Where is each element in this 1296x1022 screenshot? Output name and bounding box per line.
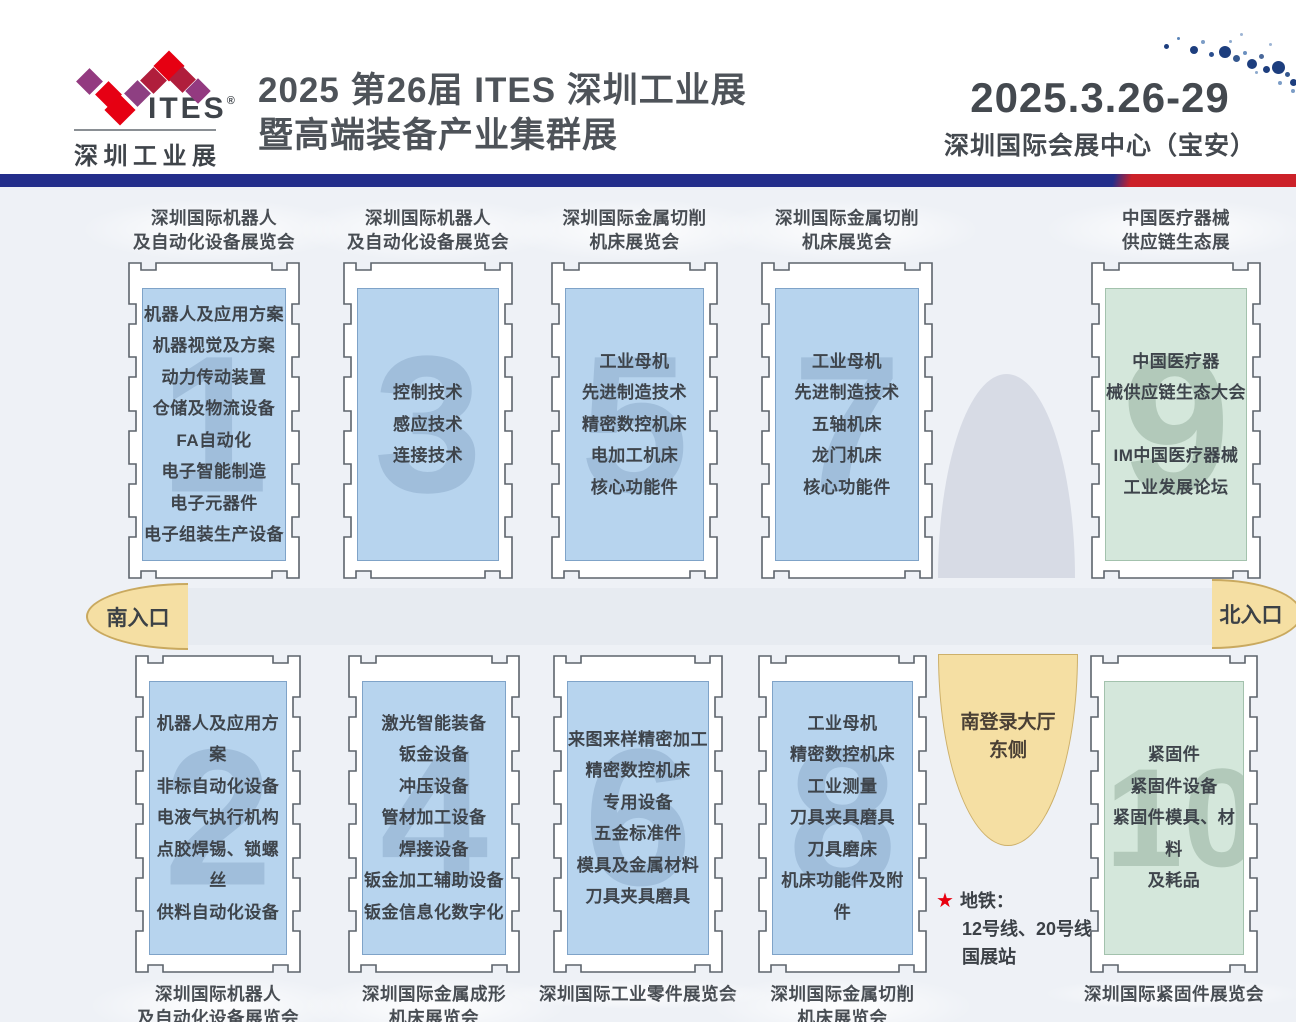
hall-10-items: 紧固件紧固件设备紧固件模具、材料及耗品 xyxy=(1105,739,1243,897)
title-line-2: 暨高端装备产业集群展 xyxy=(258,113,747,158)
north-lobby-shape xyxy=(938,374,1075,578)
hall-2-label: 深圳国际机器人及自动化设备展览会 xyxy=(105,982,331,1022)
hall-item: 及耗品 xyxy=(1105,865,1243,897)
hall-item: 管材加工设备 xyxy=(364,802,504,834)
hall-7: 7工业母机先进制造技术五轴机床龙门机床核心功能件 xyxy=(761,262,933,579)
hall-item: 来图来样精密加工 xyxy=(568,724,708,756)
hall-10-area: 10紧固件紧固件设备紧固件模具、材料及耗品 xyxy=(1104,681,1244,955)
hall-item: 紧固件 xyxy=(1105,739,1243,771)
hall-item xyxy=(1106,409,1246,441)
hall-label-line: 中国医疗器械 xyxy=(1061,206,1291,230)
event-date: 2025.3.26-29 xyxy=(930,74,1270,122)
hall-label-line: 供应链生态展 xyxy=(1061,230,1291,254)
hall-item: 仓储及物流设备 xyxy=(144,393,284,425)
divider-bar xyxy=(0,174,1296,187)
hall-item: 电液气执行机构 xyxy=(150,802,286,834)
star-icon: ★ xyxy=(936,890,954,912)
hall-item: 动力传动装置 xyxy=(144,362,284,394)
hall-6-items: 来图来样精密加工精密数控机床专用设备五金标准件模具及金属材料刀具夹具磨具 xyxy=(568,724,708,913)
north-entrance: 北入口 xyxy=(1212,579,1296,649)
hall-label-line: 深圳国际机器人 xyxy=(105,982,331,1006)
hall-item: 精密数控机床 xyxy=(582,409,687,441)
decorative-dot xyxy=(1291,89,1295,93)
decorative-dot xyxy=(1164,44,1169,49)
hall-item: 龙门机床 xyxy=(795,440,900,472)
hall-item: 工业母机 xyxy=(773,708,912,740)
hall-item: 模具及金属材料 xyxy=(568,850,708,882)
hall-item: 感应技术 xyxy=(393,409,463,441)
metro-note: ★地铁： 12号线、20号线 国展站 xyxy=(936,887,1106,971)
central-corridor xyxy=(170,588,1226,645)
hall-label-line: 深圳国际金属切削 xyxy=(731,206,963,230)
lobby-line-2: 东侧 xyxy=(989,737,1027,765)
hall-item: IM中国医疗器械 xyxy=(1106,440,1246,472)
hall-label-line: 及自动化设备展览会 xyxy=(105,1006,331,1022)
hall-item: 电子组装生产设备 xyxy=(144,519,284,551)
hall-item: FA自动化 xyxy=(144,425,284,457)
hall-item: 钣金设备 xyxy=(364,739,504,771)
hall-5: 5工业母机先进制造技术精密数控机床电加工机床核心功能件 xyxy=(551,262,718,579)
hall-item: 工业母机 xyxy=(795,346,900,378)
ites-logo: ITES® 深圳工业展 xyxy=(66,30,226,170)
decorative-dot xyxy=(1177,37,1180,40)
hall-item: 电加工机床 xyxy=(582,440,687,472)
hall-item: 冲压设备 xyxy=(364,771,504,803)
registered-mark: ® xyxy=(227,95,238,107)
hall-7-label: 深圳国际金属切削机床展览会 xyxy=(731,206,963,254)
lobby-line-1: 南登录大厅 xyxy=(960,709,1055,737)
metro-title: ★地铁： xyxy=(936,887,1106,915)
hall-item: 核心功能件 xyxy=(582,472,687,504)
decorative-dot xyxy=(1290,79,1296,86)
hall-3-area: 3控制技术感应技术连接技术 xyxy=(357,288,499,561)
event-info: 2025.3.26-29 深圳国际会展中心（宝安） xyxy=(930,74,1270,162)
hall-item: 五金标准件 xyxy=(568,818,708,850)
hall-6: 6来图来样精密加工精密数控机床专用设备五金标准件模具及金属材料刀具夹具磨具 xyxy=(553,655,723,973)
hall-item: 核心功能件 xyxy=(795,472,900,504)
decorative-dot xyxy=(1285,72,1290,77)
header: ITES® 深圳工业展 2025 第26届 ITES 深圳工业展 暨高端装备产业… xyxy=(0,0,1296,176)
hall-item: 工业母机 xyxy=(582,346,687,378)
hall-4-area: 4激光智能装备钣金设备冲压设备管材加工设备焊接设备钣金加工辅助设备钣金信息化数字… xyxy=(362,681,506,955)
metro-lines: 12号线、20号线 xyxy=(936,915,1106,943)
metro-station: 国展站 xyxy=(936,943,1106,971)
decorative-dot xyxy=(1209,52,1214,57)
hall-item: 机床功能件及附件 xyxy=(773,865,912,928)
hall-item: 焊接设备 xyxy=(364,834,504,866)
hall-4-items: 激光智能装备钣金设备冲压设备管材加工设备焊接设备钣金加工辅助设备钣金信息化数字化 xyxy=(364,708,504,929)
page-title: 2025 第26届 ITES 深圳工业展 暨高端装备产业集群展 xyxy=(258,68,747,158)
decorative-dot xyxy=(1247,59,1257,69)
hall-item: 精密数控机床 xyxy=(568,755,708,787)
hall-2: 2机器人及应用方案非标自动化设备电液气执行机构点胶焊锡、锁螺丝供料自动化设备 xyxy=(135,655,301,973)
floor-plan: 南入口 北入口 南登录大厅 东侧 ★地铁： 12号线、20号线 国展站 深圳国际… xyxy=(0,187,1296,1022)
hall-4: 4激光智能装备钣金设备冲压设备管材加工设备焊接设备钣金加工辅助设备钣金信息化数字… xyxy=(348,655,520,973)
title-line-1: 2025 第26届 ITES 深圳工业展 xyxy=(258,68,747,113)
hall-1: 1机器人及应用方案机器视觉及方案动力传动装置仓储及物流设备FA自动化电子智能制造… xyxy=(128,262,300,579)
decorative-dot xyxy=(1219,46,1231,58)
hall-7-area: 7工业母机先进制造技术五轴机床龙门机床核心功能件 xyxy=(775,288,919,561)
hall-8-items: 工业母机精密数控机床工业测量刀具夹具磨具刀具磨床机床功能件及附件 xyxy=(773,708,912,929)
hall-item: 工业发展论坛 xyxy=(1106,472,1246,504)
hall-3-items: 控制技术感应技术连接技术 xyxy=(393,377,463,472)
south-login-hall: 南登录大厅 东侧 xyxy=(938,654,1078,846)
logo-divider-line xyxy=(74,129,216,131)
hall-item: 刀具夹具磨具 xyxy=(568,881,708,913)
decorative-dot xyxy=(1272,61,1285,74)
decorative-dot xyxy=(1255,71,1258,74)
hall-1-area: 1机器人及应用方案机器视觉及方案动力传动装置仓储及物流设备FA自动化电子智能制造… xyxy=(142,288,286,561)
hall-item: 紧固件设备 xyxy=(1105,771,1243,803)
hall-10: 10紧固件紧固件设备紧固件模具、材料及耗品 xyxy=(1090,655,1258,973)
hall-10-label: 深圳国际紧固件展览会 xyxy=(1060,982,1288,1006)
hall-item: 供料自动化设备 xyxy=(150,897,286,929)
decorative-dot xyxy=(1269,43,1272,46)
hall-5-items: 工业母机先进制造技术精密数控机床电加工机床核心功能件 xyxy=(582,346,687,504)
hall-label-line: 深圳国际紧固件展览会 xyxy=(1060,982,1288,1006)
logo-subtitle: 深圳工业展 xyxy=(74,136,216,171)
hall-item: 工业测量 xyxy=(773,771,912,803)
hall-item: 械供应链生态大会 xyxy=(1106,377,1246,409)
south-entrance: 南入口 xyxy=(86,583,188,650)
hall-1-items: 机器人及应用方案机器视觉及方案动力传动装置仓储及物流设备FA自动化电子智能制造电… xyxy=(144,299,284,551)
hall-item: 紧固件模具、材料 xyxy=(1105,802,1243,865)
event-venue: 深圳国际会展中心（宝安） xyxy=(930,126,1270,162)
hall-item: 先进制造技术 xyxy=(582,377,687,409)
hall-item: 刀具夹具磨具 xyxy=(773,802,912,834)
decorative-dot xyxy=(1229,40,1232,43)
exhibition-floor-plan: ITES® 深圳工业展 2025 第26届 ITES 深圳工业展 暨高端装备产业… xyxy=(0,0,1296,1022)
hall-8-label: 深圳国际金属切削机床展览会 xyxy=(728,982,957,1022)
decorative-dot xyxy=(1190,46,1198,54)
decorative-dot xyxy=(1243,51,1247,55)
decorative-dot xyxy=(1240,33,1243,36)
hall-item: 五轴机床 xyxy=(795,409,900,441)
decorative-dot xyxy=(1278,81,1282,85)
hall-item: 中国医疗器 xyxy=(1106,346,1246,378)
hall-item: 非标自动化设备 xyxy=(150,771,286,803)
decorative-dot xyxy=(1201,40,1205,44)
hall-label-line: 机床展览会 xyxy=(728,1006,957,1022)
decorative-dot xyxy=(1233,55,1240,62)
decorative-dot xyxy=(1263,66,1270,73)
hall-9-items: 中国医疗器械供应链生态大会 IM中国医疗器械工业发展论坛 xyxy=(1106,346,1246,504)
hall-label-line: 深圳国际金属切削 xyxy=(728,982,957,1006)
hall-item: 刀具磨床 xyxy=(773,834,912,866)
hall-9-label: 中国医疗器械供应链生态展 xyxy=(1061,206,1291,254)
hall-2-items: 机器人及应用方案非标自动化设备电液气执行机构点胶焊锡、锁螺丝供料自动化设备 xyxy=(150,708,286,929)
hall-item: 机器视觉及方案 xyxy=(144,330,284,362)
hall-item: 专用设备 xyxy=(568,787,708,819)
hall-item: 钣金加工辅助设备 xyxy=(364,865,504,897)
hall-item: 先进制造技术 xyxy=(795,377,900,409)
hall-5-area: 5工业母机先进制造技术精密数控机床电加工机床核心功能件 xyxy=(565,288,704,561)
hall-8: 8工业母机精密数控机床工业测量刀具夹具磨具刀具磨床机床功能件及附件 xyxy=(758,655,927,973)
hall-label-line: 机床展览会 xyxy=(731,230,963,254)
hall-item: 机器人及应用方案 xyxy=(144,299,284,331)
hall-item: 控制技术 xyxy=(393,377,463,409)
hall-3: 3控制技术感应技术连接技术 xyxy=(343,262,513,579)
hall-9-area: 9中国医疗器械供应链生态大会 IM中国医疗器械工业发展论坛 xyxy=(1105,288,1247,561)
hall-item: 激光智能装备 xyxy=(364,708,504,740)
hall-item: 点胶焊锡、锁螺丝 xyxy=(150,834,286,897)
hall-item: 钣金信息化数字化 xyxy=(364,897,504,929)
hall-6-area: 6来图来样精密加工精密数控机床专用设备五金标准件模具及金属材料刀具夹具磨具 xyxy=(567,681,709,955)
hall-item: 连接技术 xyxy=(393,440,463,472)
hall-item: 电子智能制造 xyxy=(144,456,284,488)
hall-item: 机器人及应用方案 xyxy=(150,708,286,771)
hall-7-items: 工业母机先进制造技术五轴机床龙门机床核心功能件 xyxy=(795,346,900,504)
hall-9: 9中国医疗器械供应链生态大会 IM中国医疗器械工业发展论坛 xyxy=(1091,262,1261,579)
hall-item: 精密数控机床 xyxy=(773,739,912,771)
hall-2-area: 2机器人及应用方案非标自动化设备电液气执行机构点胶焊锡、锁螺丝供料自动化设备 xyxy=(149,681,287,955)
hall-8-area: 8工业母机精密数控机床工业测量刀具夹具磨具刀具磨床机床功能件及附件 xyxy=(772,681,913,955)
hall-item: 电子元器件 xyxy=(144,488,284,520)
decorative-dot xyxy=(1259,54,1264,59)
